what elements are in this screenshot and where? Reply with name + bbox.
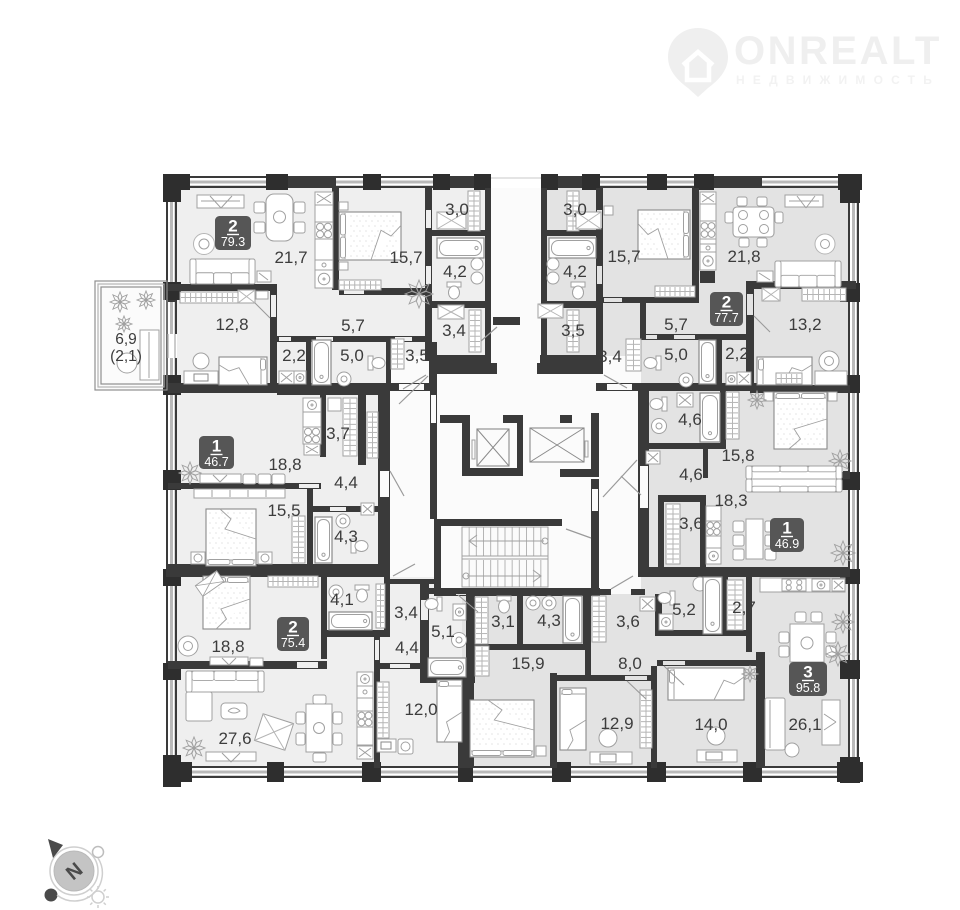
svg-text:15,9: 15,9	[511, 654, 544, 673]
svg-text:5,7: 5,7	[341, 316, 365, 335]
svg-text:15,7: 15,7	[607, 247, 640, 266]
svg-text:5,1: 5,1	[431, 622, 455, 641]
svg-text:(2,1): (2,1)	[110, 348, 142, 365]
svg-text:6,9: 6,9	[115, 331, 137, 348]
svg-text:26,1: 26,1	[788, 715, 821, 734]
svg-text:13,2: 13,2	[788, 315, 821, 334]
svg-text:14,0: 14,0	[694, 715, 727, 734]
svg-text:5,0: 5,0	[340, 346, 364, 365]
svg-text:2,2: 2,2	[282, 346, 306, 365]
svg-text:4,4: 4,4	[395, 638, 419, 657]
svg-text:НЕДВИЖИМОСТЬ: НЕДВИЖИМОСТЬ	[736, 73, 940, 87]
svg-text:3,1: 3,1	[491, 612, 515, 631]
svg-text:12,8: 12,8	[215, 315, 248, 334]
svg-text:75.4: 75.4	[281, 636, 305, 650]
svg-text:4,6: 4,6	[678, 410, 702, 429]
svg-text:21,7: 21,7	[274, 248, 307, 267]
svg-text:15,5: 15,5	[267, 501, 300, 520]
svg-text:12,0: 12,0	[404, 700, 437, 719]
svg-text:3,4: 3,4	[442, 321, 466, 340]
svg-text:4,1: 4,1	[330, 590, 354, 609]
svg-text:2,2: 2,2	[725, 344, 749, 363]
svg-text:3,7: 3,7	[326, 424, 350, 443]
svg-text:4,4: 4,4	[334, 473, 358, 492]
svg-text:18,8: 18,8	[268, 455, 301, 474]
svg-text:2: 2	[228, 217, 237, 236]
svg-text:3,6: 3,6	[679, 514, 703, 533]
svg-text:2: 2	[722, 293, 731, 312]
svg-text:46.9: 46.9	[775, 537, 799, 551]
svg-text:4,2: 4,2	[443, 262, 467, 281]
svg-text:18,3: 18,3	[714, 491, 747, 510]
svg-text:3,5: 3,5	[405, 346, 429, 365]
svg-text:3,0: 3,0	[445, 200, 469, 219]
svg-text:15,8: 15,8	[721, 446, 754, 465]
svg-text:5,0: 5,0	[664, 345, 688, 364]
svg-text:18,8: 18,8	[211, 637, 244, 656]
svg-text:95.8: 95.8	[796, 681, 820, 695]
svg-text:4,3: 4,3	[334, 527, 358, 546]
svg-text:2,7: 2,7	[732, 598, 756, 617]
svg-text:3,5: 3,5	[561, 321, 585, 340]
svg-text:46.7: 46.7	[204, 455, 228, 469]
svg-text:77.7: 77.7	[714, 311, 738, 325]
svg-text:5,2: 5,2	[672, 600, 696, 619]
svg-text:ONREALT: ONREALT	[734, 29, 942, 73]
svg-text:3,0: 3,0	[563, 200, 587, 219]
svg-text:79.3: 79.3	[221, 235, 245, 249]
svg-text:3,4: 3,4	[598, 347, 622, 366]
svg-text:4,6: 4,6	[679, 465, 703, 484]
svg-text:21,8: 21,8	[727, 247, 760, 266]
svg-text:3,4: 3,4	[394, 603, 418, 622]
svg-text:12,9: 12,9	[600, 714, 633, 733]
svg-text:2: 2	[288, 618, 297, 637]
svg-text:3: 3	[803, 663, 812, 682]
svg-text:15,7: 15,7	[389, 248, 422, 267]
svg-text:5,7: 5,7	[664, 315, 688, 334]
svg-text:4,3: 4,3	[537, 611, 561, 630]
svg-text:3,6: 3,6	[616, 612, 640, 631]
svg-text:4,2: 4,2	[563, 262, 587, 281]
svg-text:27,6: 27,6	[218, 729, 251, 748]
svg-text:8,0: 8,0	[618, 654, 642, 673]
svg-text:1: 1	[782, 519, 791, 538]
svg-text:1: 1	[212, 437, 221, 456]
